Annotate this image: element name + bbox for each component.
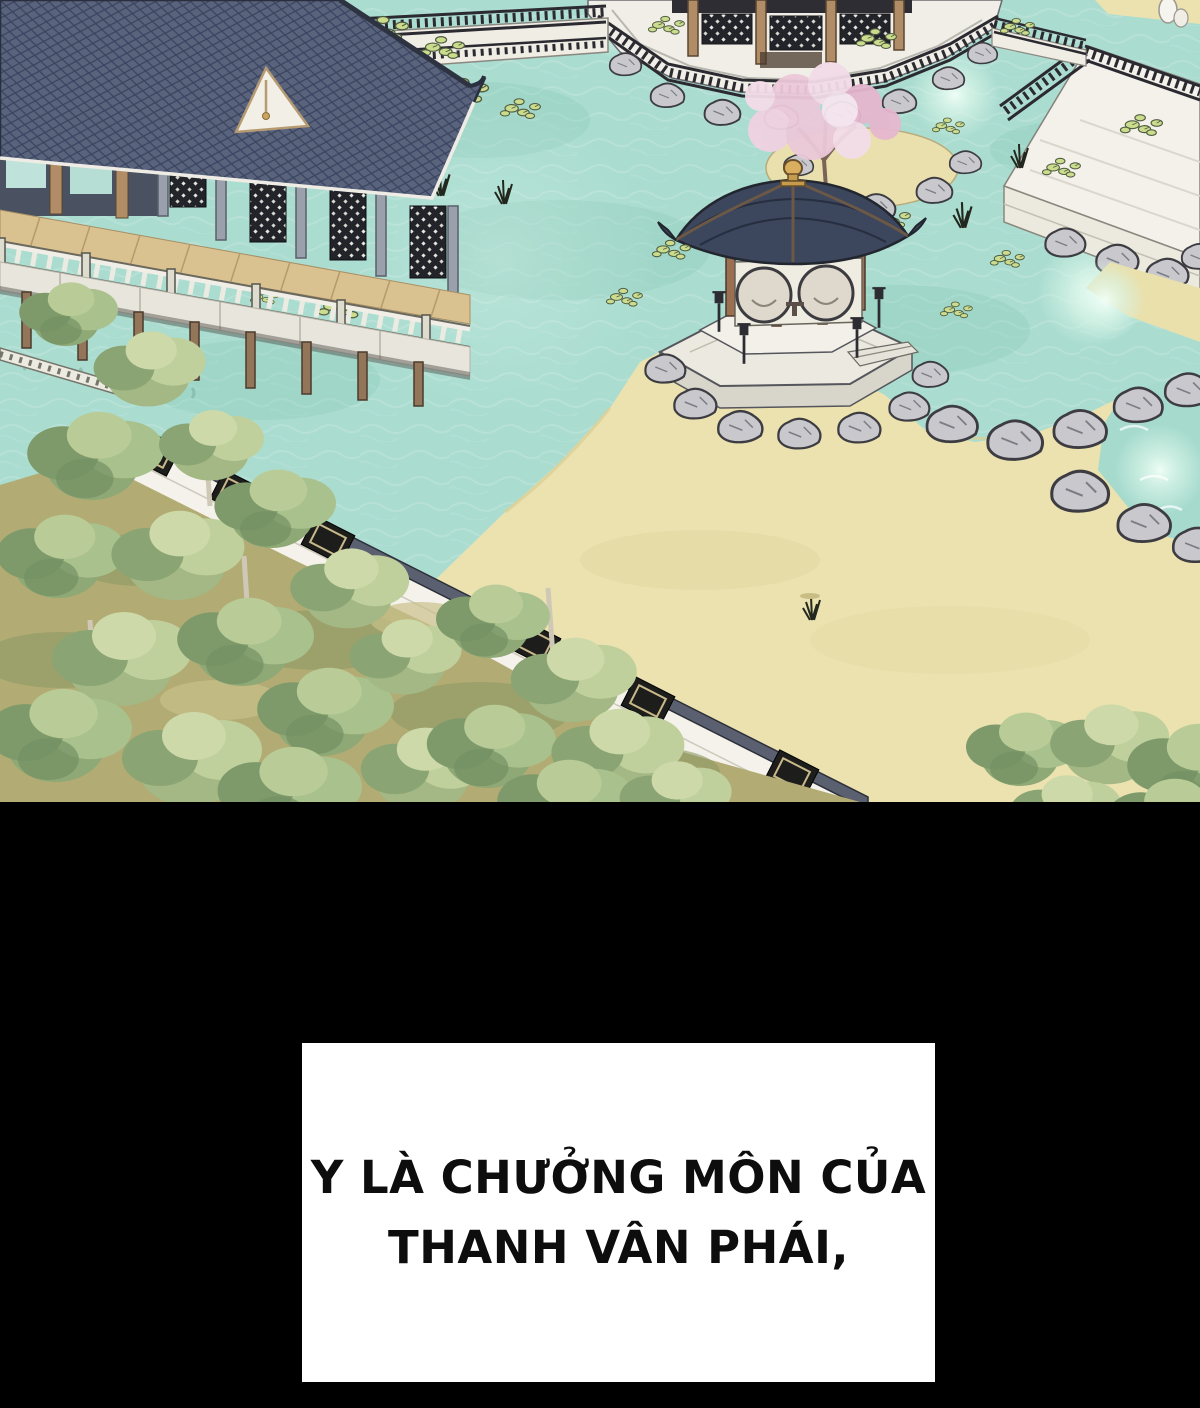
garden-scene-illustration [0, 0, 1200, 802]
webtoon-panel: Y LÀ CHƯỞNG MÔN CỦA THANH VÂN PHÁI, [0, 0, 1200, 1408]
caption-box: Y LÀ CHƯỞNG MÔN CỦA THANH VÂN PHÁI, [302, 1043, 935, 1382]
caption-text-line-1: Y LÀ CHƯỞNG MÔN CỦA [311, 1143, 927, 1213]
caption-text-line-2: THANH VÂN PHÁI, [388, 1213, 849, 1283]
gazebo-moon-gates [735, 258, 862, 326]
